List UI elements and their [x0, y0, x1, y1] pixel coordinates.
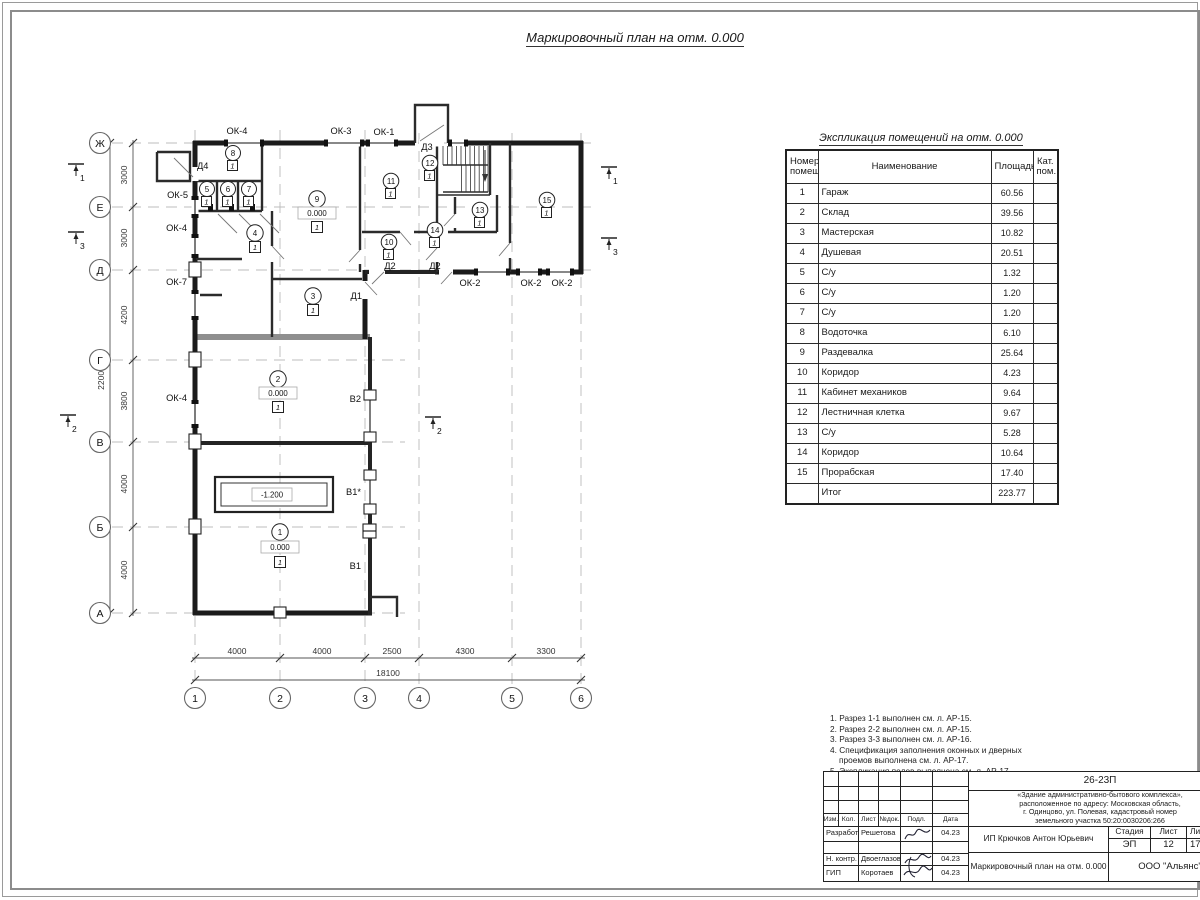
stage-label: Стадия — [1109, 827, 1151, 839]
stage-value: ЭП — [1109, 839, 1151, 854]
table-row: 11Кабинет механиков9.64 — [786, 384, 1058, 404]
svg-text:3800: 3800 — [119, 391, 129, 410]
table-cell: 223.77 — [991, 484, 1033, 505]
note-line: 3. Разрез 3-3 выполнен см. л. АР-16. — [830, 734, 1022, 745]
svg-text:4000: 4000 — [313, 646, 332, 656]
table-cell — [1033, 424, 1058, 444]
svg-text:4300: 4300 — [456, 646, 475, 656]
table-cell — [1033, 344, 1058, 364]
walls — [157, 105, 583, 617]
table-row: 13С/у5.28 — [786, 424, 1058, 444]
table-row: 4Душевая20.51 — [786, 244, 1058, 264]
svg-text:1: 1 — [544, 209, 548, 218]
doc-number: 26-23П — [969, 772, 1200, 791]
svg-text:А: А — [96, 608, 103, 620]
col-podl: Подл. — [901, 814, 933, 827]
table-cell: Раздевалка — [818, 344, 991, 364]
table-cell — [1033, 224, 1058, 244]
room-schedule-table: Номер помещ. Наименование Площадь Кат. п… — [785, 149, 1059, 505]
window-label: ОК-4 — [166, 393, 187, 403]
table-cell: Мастерская — [818, 224, 991, 244]
signature-cell — [901, 842, 933, 854]
svg-text:В: В — [96, 437, 103, 449]
table-cell — [1033, 284, 1058, 304]
table-row: 14Коридор10.64 — [786, 444, 1058, 464]
table-row: 1Гараж60.56 — [786, 184, 1058, 204]
svg-text:1: 1 — [225, 198, 229, 207]
axis-bubbles: Ж Е Д Г В Б А 1 2 3 4 5 6 — [90, 133, 592, 709]
sheet-label: Лист — [1151, 827, 1187, 839]
svg-text:14: 14 — [431, 226, 440, 235]
date-cell: 04.23 — [933, 854, 969, 866]
table-cell: 10.64 — [991, 444, 1033, 464]
table-cell: С/у — [818, 264, 991, 284]
table-cell — [1033, 484, 1058, 505]
svg-text:1: 1 — [311, 306, 315, 315]
table-cell: 4.23 — [991, 364, 1033, 384]
grid-line — [824, 786, 969, 787]
svg-text:2500: 2500 — [383, 646, 402, 656]
svg-text:1: 1 — [432, 239, 436, 248]
table-row: 7С/у1.20 — [786, 304, 1058, 324]
svg-text:2: 2 — [277, 693, 283, 705]
table-cell: 3 — [786, 224, 818, 244]
svg-text:4: 4 — [253, 229, 258, 238]
svg-text:Б: Б — [97, 522, 104, 534]
svg-text:4: 4 — [416, 693, 422, 705]
svg-text:6: 6 — [578, 693, 584, 705]
gate-label: В1* — [346, 487, 361, 497]
role-label: Н. контр. — [824, 854, 859, 866]
col-list: Лист — [859, 814, 879, 827]
signature — [901, 853, 934, 880]
svg-text:1: 1 — [192, 693, 198, 705]
table-cell — [1033, 404, 1058, 424]
window-label: ОК-2 — [521, 278, 542, 288]
window-label: ОК-1 — [374, 127, 395, 137]
table-row: 9Раздевалка25.64 — [786, 344, 1058, 364]
svg-text:0.000: 0.000 — [307, 209, 327, 218]
section-mark: 1 — [601, 167, 618, 186]
svg-text:Г: Г — [97, 355, 103, 367]
table-cell: 7 — [786, 304, 818, 324]
table-cell: 5 — [786, 264, 818, 284]
sheet-number: 12 — [1151, 839, 1187, 854]
door-label: Д1 — [351, 291, 362, 301]
room-marker: 14 1 — [427, 222, 443, 247]
window-label: ОК-2 — [552, 278, 573, 288]
note-line: 4. Спецификация заполнения оконных и две… — [830, 745, 1022, 756]
col-izm: Изм. — [824, 814, 839, 827]
room-marker: 3 1 — [305, 288, 321, 316]
section-mark: 1 — [68, 164, 85, 183]
table-row: 8Водоточка6.10 — [786, 324, 1058, 344]
person-name: Решетова — [859, 827, 901, 843]
role-label — [824, 842, 859, 854]
svg-text:Ж: Ж — [95, 138, 105, 150]
window-label: ОК-4 — [227, 126, 248, 136]
room-marker: 5 1 — [200, 182, 215, 207]
svg-text:1: 1 — [613, 176, 618, 186]
drawing-sheet: Маркировочный план на отм. 0.000 — [0, 0, 1200, 900]
person-name: Двоеглазов — [859, 854, 901, 866]
table-cell: Коридор — [818, 444, 991, 464]
role-label: ГИП — [824, 866, 859, 882]
sheets-label: Листов — [1187, 827, 1200, 839]
svg-text:2: 2 — [437, 426, 442, 436]
table-row: 2Склад39.56 — [786, 204, 1058, 224]
revision-cell — [839, 772, 859, 814]
svg-text:1: 1 — [477, 219, 481, 228]
svg-text:9: 9 — [315, 195, 320, 204]
table-cell: 17.40 — [991, 464, 1033, 484]
table-cell: 9.67 — [991, 404, 1033, 424]
table-cell: 8 — [786, 324, 818, 344]
svg-text:8: 8 — [231, 149, 236, 158]
table-cell — [1033, 264, 1058, 284]
svg-text:1: 1 — [278, 528, 283, 537]
table-cell — [1033, 384, 1058, 404]
window-label: ОК-7 — [166, 277, 187, 287]
project-description: «Здание административно-бытового комплек… — [969, 791, 1200, 827]
table-cell: Склад — [818, 204, 991, 224]
svg-text:1: 1 — [204, 198, 208, 207]
note-line: 2. Разрез 2-2 выполнен см. л. АР-15. — [830, 724, 1022, 735]
room-marker: 13 1 — [472, 202, 488, 227]
table-cell — [1033, 464, 1058, 484]
room-marker: 2 0.000 1 — [259, 371, 297, 413]
room-marker: 4 1 — [247, 225, 263, 253]
svg-text:3: 3 — [613, 247, 618, 257]
revision-cell — [824, 772, 839, 814]
svg-text:15: 15 — [543, 196, 552, 205]
table-cell: 6 — [786, 284, 818, 304]
col-kol: Кол. — [839, 814, 859, 827]
revision-cell — [859, 772, 879, 814]
svg-text:4000: 4000 — [119, 474, 129, 493]
svg-text:2: 2 — [72, 424, 77, 434]
client-name: ИП Крючков Антон Юрьевич — [969, 827, 1109, 854]
svg-text:1: 1 — [80, 173, 85, 183]
svg-text:3000: 3000 — [119, 228, 129, 247]
role-label: Разработал — [824, 827, 859, 843]
grid-line — [824, 800, 969, 801]
svg-text:1: 1 — [276, 403, 280, 412]
col-header-name: Наименование — [818, 150, 991, 184]
table-cell — [1033, 304, 1058, 324]
table-cell: Коридор — [818, 364, 991, 384]
svg-text:2: 2 — [276, 375, 281, 384]
stairs — [443, 146, 488, 192]
table-row: 12Лестничная клетка9.67 — [786, 404, 1058, 424]
table-cell: 20.51 — [991, 244, 1033, 264]
pit: -1.200 — [215, 477, 333, 512]
date-cell — [933, 842, 969, 854]
svg-text:1: 1 — [278, 558, 282, 567]
col-data: Дата — [933, 814, 969, 827]
table-cell: 1.32 — [991, 264, 1033, 284]
table-cell — [1033, 184, 1058, 204]
note-line: проемов выполнена см. л. АР-17. — [830, 755, 1022, 766]
table-cell: 9.64 — [991, 384, 1033, 404]
svg-text:3000: 3000 — [119, 165, 129, 184]
room-marker: 10 1 — [381, 234, 397, 259]
table-cell — [1033, 324, 1058, 344]
table-cell: Итог — [818, 484, 991, 505]
table-cell: 9 — [786, 344, 818, 364]
signature — [902, 827, 933, 842]
room-marker: 7 1 — [242, 182, 257, 207]
pit-elevation: -1.200 — [261, 491, 284, 500]
room-marker: 11 1 — [383, 173, 399, 198]
svg-text:1: 1 — [246, 198, 250, 207]
table-cell: 12 — [786, 404, 818, 424]
table-cell: Лестничная клетка — [818, 404, 991, 424]
table-cell: 4 — [786, 244, 818, 264]
svg-text:1: 1 — [253, 243, 257, 252]
door-label: Д4 — [197, 161, 208, 171]
gate-label: В2 — [350, 394, 361, 404]
date-cell: 04.23 — [933, 827, 969, 843]
note-line: 1. Разрез 1-1 выполнен см. л. АР-15. — [830, 713, 1022, 724]
svg-text:1: 1 — [386, 251, 390, 260]
svg-text:1: 1 — [388, 190, 392, 199]
room-marker: 9 0.000 1 — [298, 191, 336, 233]
door-label: Д2 — [384, 261, 395, 271]
col-ndok: №док. — [879, 814, 901, 827]
section-mark: 3 — [68, 232, 85, 251]
table-cell: 1.20 — [991, 304, 1033, 324]
table-cell: 60.56 — [991, 184, 1033, 204]
door-label: Д3 — [421, 142, 432, 152]
window-label: ОК-2 — [460, 278, 481, 288]
table-cell: С/у — [818, 304, 991, 324]
date-cell: 04.23 — [933, 866, 969, 882]
revision-cell — [879, 772, 901, 814]
table-cell: Гараж — [818, 184, 991, 204]
svg-text:4000: 4000 — [119, 560, 129, 579]
openings — [174, 125, 574, 507]
window-label: ОК-5 — [167, 190, 188, 200]
svg-text:12: 12 — [426, 159, 435, 168]
table-cell: 5.28 — [991, 424, 1033, 444]
table-cell: 39.56 — [991, 204, 1033, 224]
table-row: 3Мастерская10.82 — [786, 224, 1058, 244]
room-marker: 15 1 — [539, 192, 555, 217]
room-marker: 8 1 — [226, 146, 241, 171]
project-line: земельного участка 50:20:0030206:266 — [1035, 817, 1165, 825]
table-cell — [1033, 244, 1058, 264]
svg-text:4000: 4000 — [228, 646, 247, 656]
svg-text:3: 3 — [311, 292, 316, 301]
title-block: Изм. Кол. Лист №док. Подл. Дата Разработ… — [823, 771, 1200, 882]
table-cell — [786, 484, 818, 505]
table-row: 10Коридор4.23 — [786, 364, 1058, 384]
table-cell: 14 — [786, 444, 818, 464]
table-row: 15Прорабская17.40 — [786, 464, 1058, 484]
table-cell: 1 — [786, 184, 818, 204]
room-marker: 12 1 — [422, 155, 438, 180]
table-cell: 6.10 — [991, 324, 1033, 344]
svg-text:1: 1 — [427, 172, 431, 181]
table-row: 5С/у1.32 — [786, 264, 1058, 284]
table-cell — [1033, 204, 1058, 224]
person-name: Коротаев — [859, 866, 901, 882]
table-cell: Водоточка — [818, 324, 991, 344]
table-cell — [1033, 364, 1058, 384]
table-cell: Душевая — [818, 244, 991, 264]
svg-text:5: 5 — [205, 185, 210, 194]
section-mark: 3 — [601, 238, 618, 257]
svg-text:5: 5 — [509, 693, 515, 705]
section-mark: 2 — [60, 415, 77, 434]
table-cell: С/у — [818, 424, 991, 444]
svg-text:10: 10 — [385, 238, 394, 247]
col-header-number: Номер помещ. — [786, 150, 818, 184]
table-row: 6С/у1.20 — [786, 284, 1058, 304]
table-cell: 11 — [786, 384, 818, 404]
table-cell: 25.64 — [991, 344, 1033, 364]
svg-text:4200: 4200 — [119, 305, 129, 324]
section-mark: 2 — [425, 417, 442, 436]
table-row: Итог223.77 — [786, 484, 1058, 505]
table-cell: 10 — [786, 364, 818, 384]
notes-block: 1. Разрез 1-1 выполнен см. л. АР-15. 2. … — [830, 713, 1022, 777]
table-header-row: Номер помещ. Наименование Площадь Кат. п… — [786, 150, 1058, 184]
sheets-total: 17 — [1187, 839, 1200, 854]
svg-text:6: 6 — [226, 185, 231, 194]
drawing-title: Маркировочный план на отм. 0.000 — [969, 853, 1109, 881]
svg-text:3: 3 — [362, 693, 368, 705]
svg-text:18100: 18100 — [376, 668, 400, 678]
axis-grid — [112, 130, 592, 687]
window-label: ОК-4 — [166, 223, 187, 233]
svg-text:1: 1 — [230, 162, 234, 171]
table-cell: 15 — [786, 464, 818, 484]
table-cell: 1.20 — [991, 284, 1033, 304]
table-cell: Прорабская — [818, 464, 991, 484]
window-label: ОК-3 — [331, 126, 352, 136]
door-label: Д2 — [429, 261, 440, 271]
col-header-cat: Кат. пом. — [1033, 150, 1058, 184]
room-marker: 1 0.000 1 — [261, 524, 299, 568]
svg-text:7: 7 — [247, 185, 252, 194]
svg-text:Е: Е — [96, 202, 103, 214]
table-cell: 10.82 — [991, 224, 1033, 244]
table-cell: 2 — [786, 204, 818, 224]
svg-text:0.000: 0.000 — [270, 543, 290, 552]
person-name — [859, 842, 901, 854]
table-cell — [1033, 444, 1058, 464]
section-marks: 1 3 2 1 3 2 — [60, 164, 618, 436]
table-cell: 13 — [786, 424, 818, 444]
revision-cell — [933, 772, 969, 814]
gate-label: В1 — [350, 561, 361, 571]
room-marker: 6 1 — [221, 182, 236, 207]
svg-text:Д: Д — [96, 265, 103, 277]
svg-text:11: 11 — [387, 177, 396, 186]
svg-text:3300: 3300 — [537, 646, 556, 656]
company-name: ООО "Альянс" — [1109, 853, 1200, 881]
table-cell: С/у — [818, 284, 991, 304]
schedule-title: Экспликация помещений на отм. 0.000 — [780, 132, 1062, 144]
svg-text:13: 13 — [476, 206, 485, 215]
revision-cell — [901, 772, 933, 814]
table-cell: Кабинет механиков — [818, 384, 991, 404]
col-header-area: Площадь — [991, 150, 1033, 184]
svg-text:0.000: 0.000 — [268, 389, 288, 398]
svg-text:3: 3 — [80, 241, 85, 251]
svg-text:1: 1 — [315, 223, 319, 232]
